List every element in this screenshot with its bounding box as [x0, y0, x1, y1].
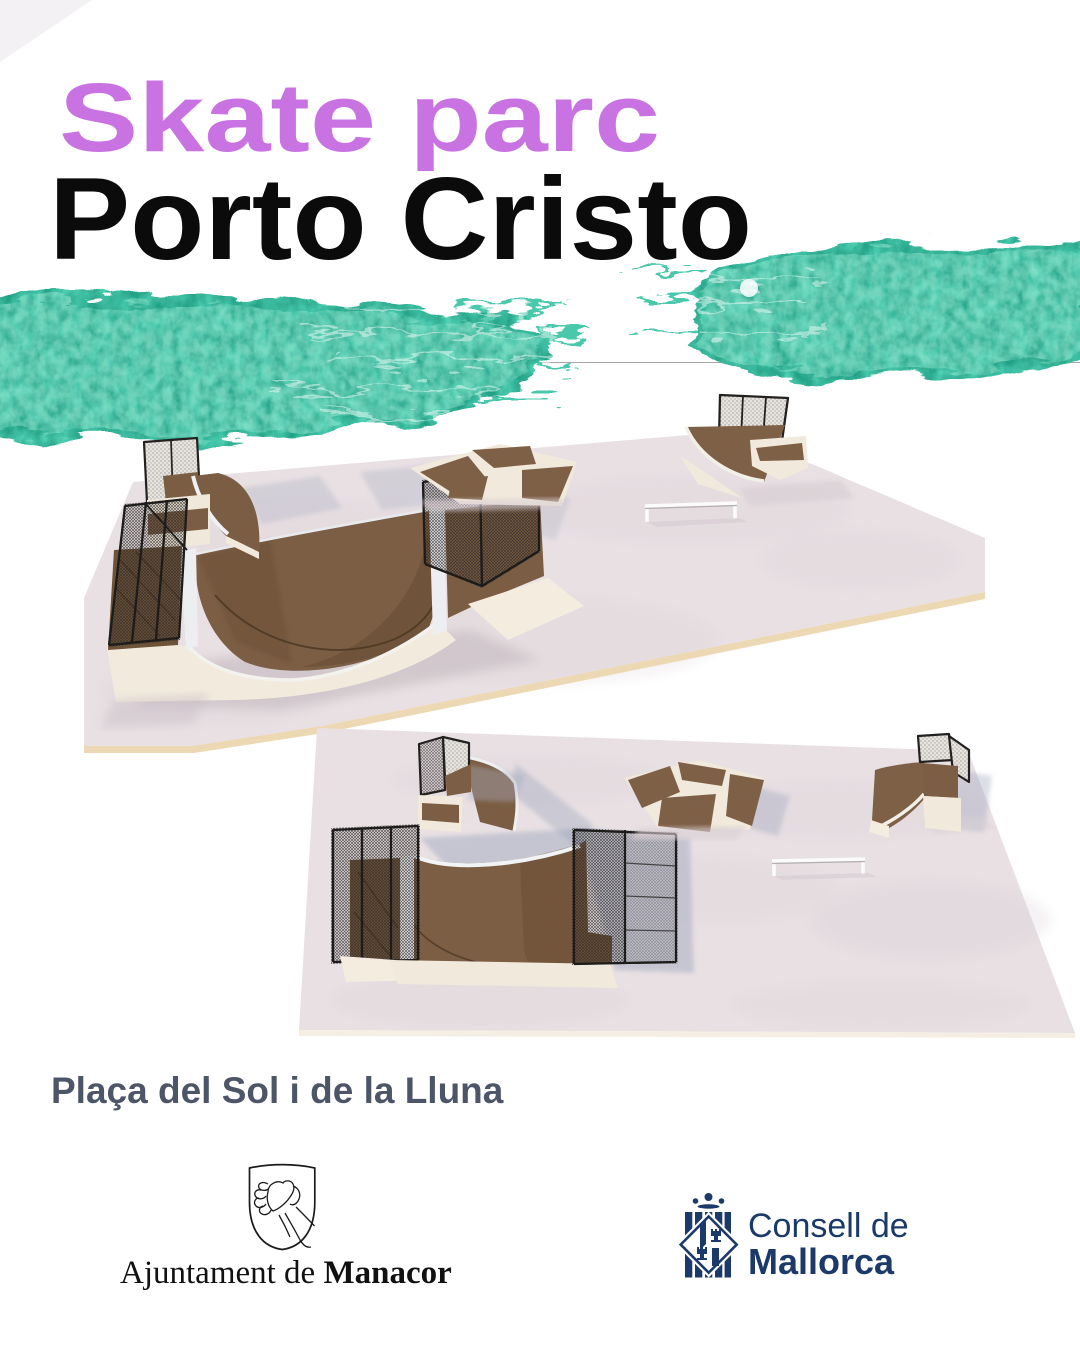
- svg-text:Ajuntament de Manacor: Ajuntament de Manacor: [120, 1255, 452, 1291]
- svg-text:Consell de: Consell de: [748, 1207, 909, 1245]
- svg-text:Mallorca: Mallorca: [748, 1241, 895, 1282]
